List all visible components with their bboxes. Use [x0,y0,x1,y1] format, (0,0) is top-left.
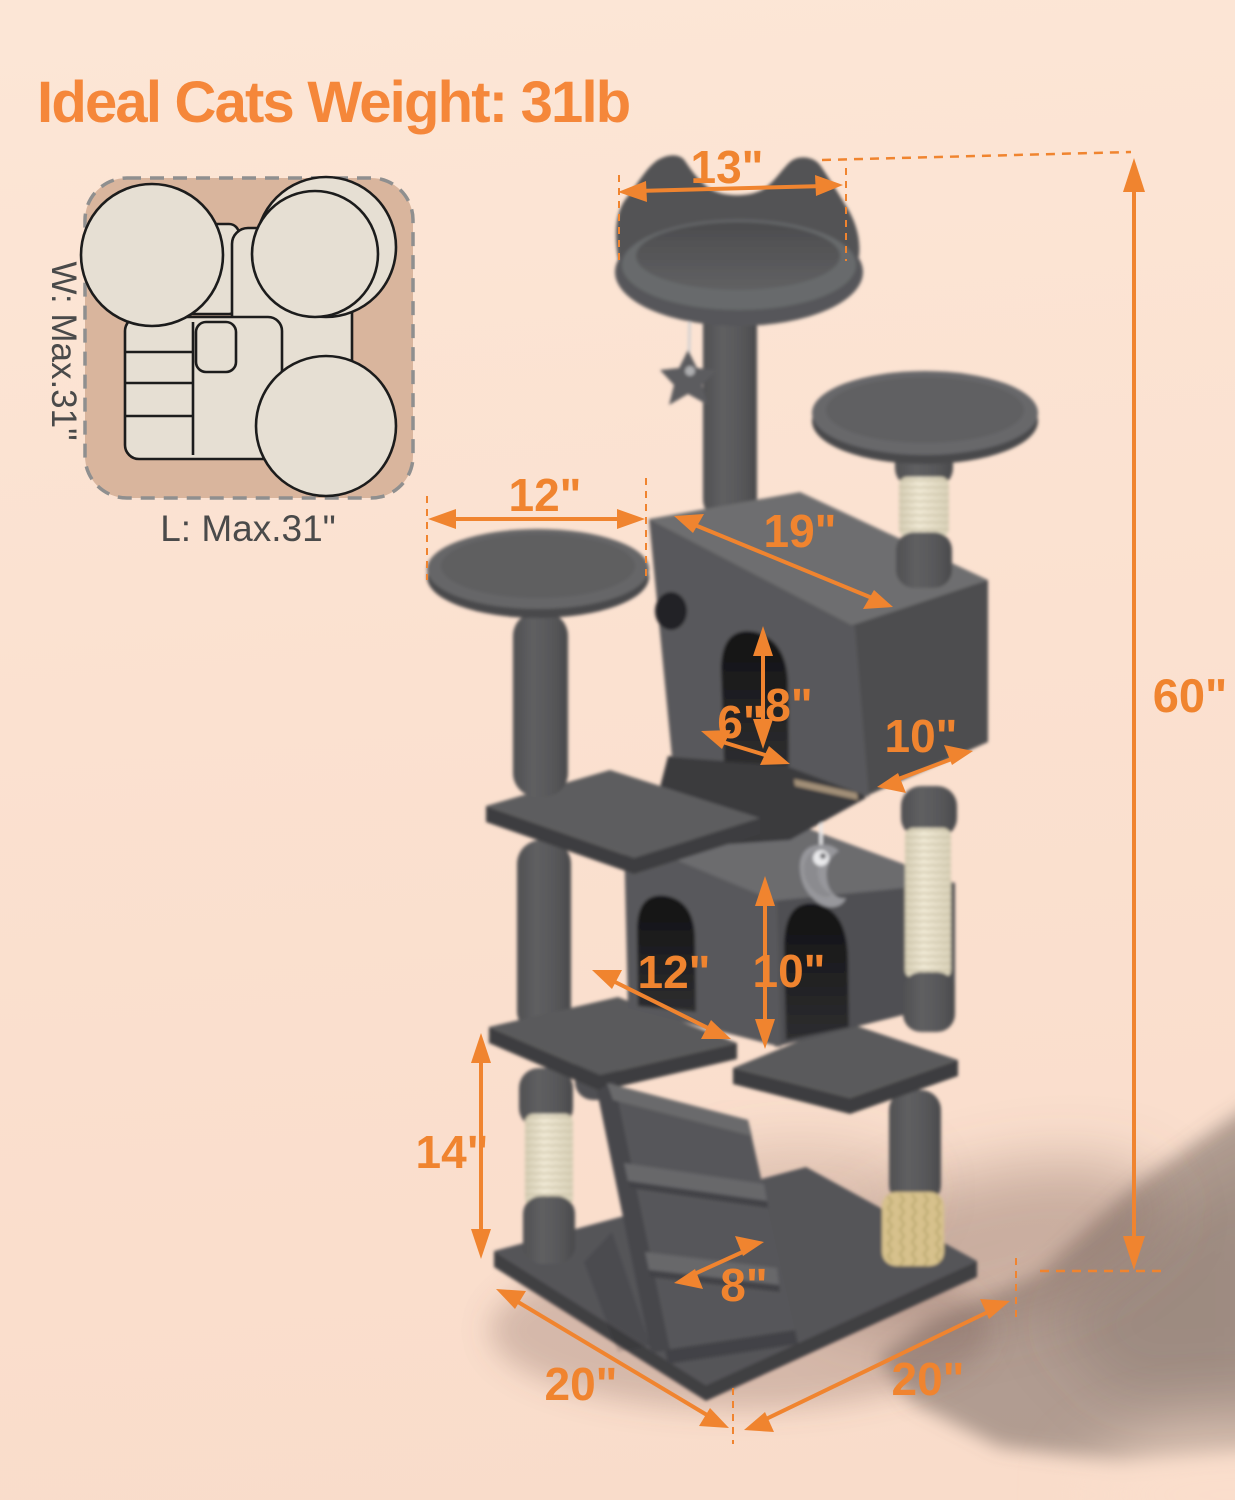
svg-text:12": 12" [638,946,711,998]
svg-text:19": 19" [764,505,837,557]
svg-text:60": 60" [1153,669,1228,722]
svg-text:6": 6" [717,696,764,748]
svg-text:8": 8" [765,679,812,731]
svg-text:10": 10" [885,710,958,762]
svg-text:12": 12" [509,469,582,521]
svg-text:14": 14" [416,1126,489,1178]
svg-text:13": 13" [691,141,764,193]
svg-text:8": 8" [720,1259,767,1311]
svg-text:W: Max.31": W: Max.31" [44,261,83,440]
svg-text:20": 20" [892,1353,965,1405]
svg-text:Ideal Cats Weight: 31lb: Ideal Cats Weight: 31lb [37,70,630,135]
svg-text:L: Max.31": L: Max.31" [160,508,336,549]
svg-text:10": 10" [753,945,826,997]
svg-text:20": 20" [545,1358,618,1410]
